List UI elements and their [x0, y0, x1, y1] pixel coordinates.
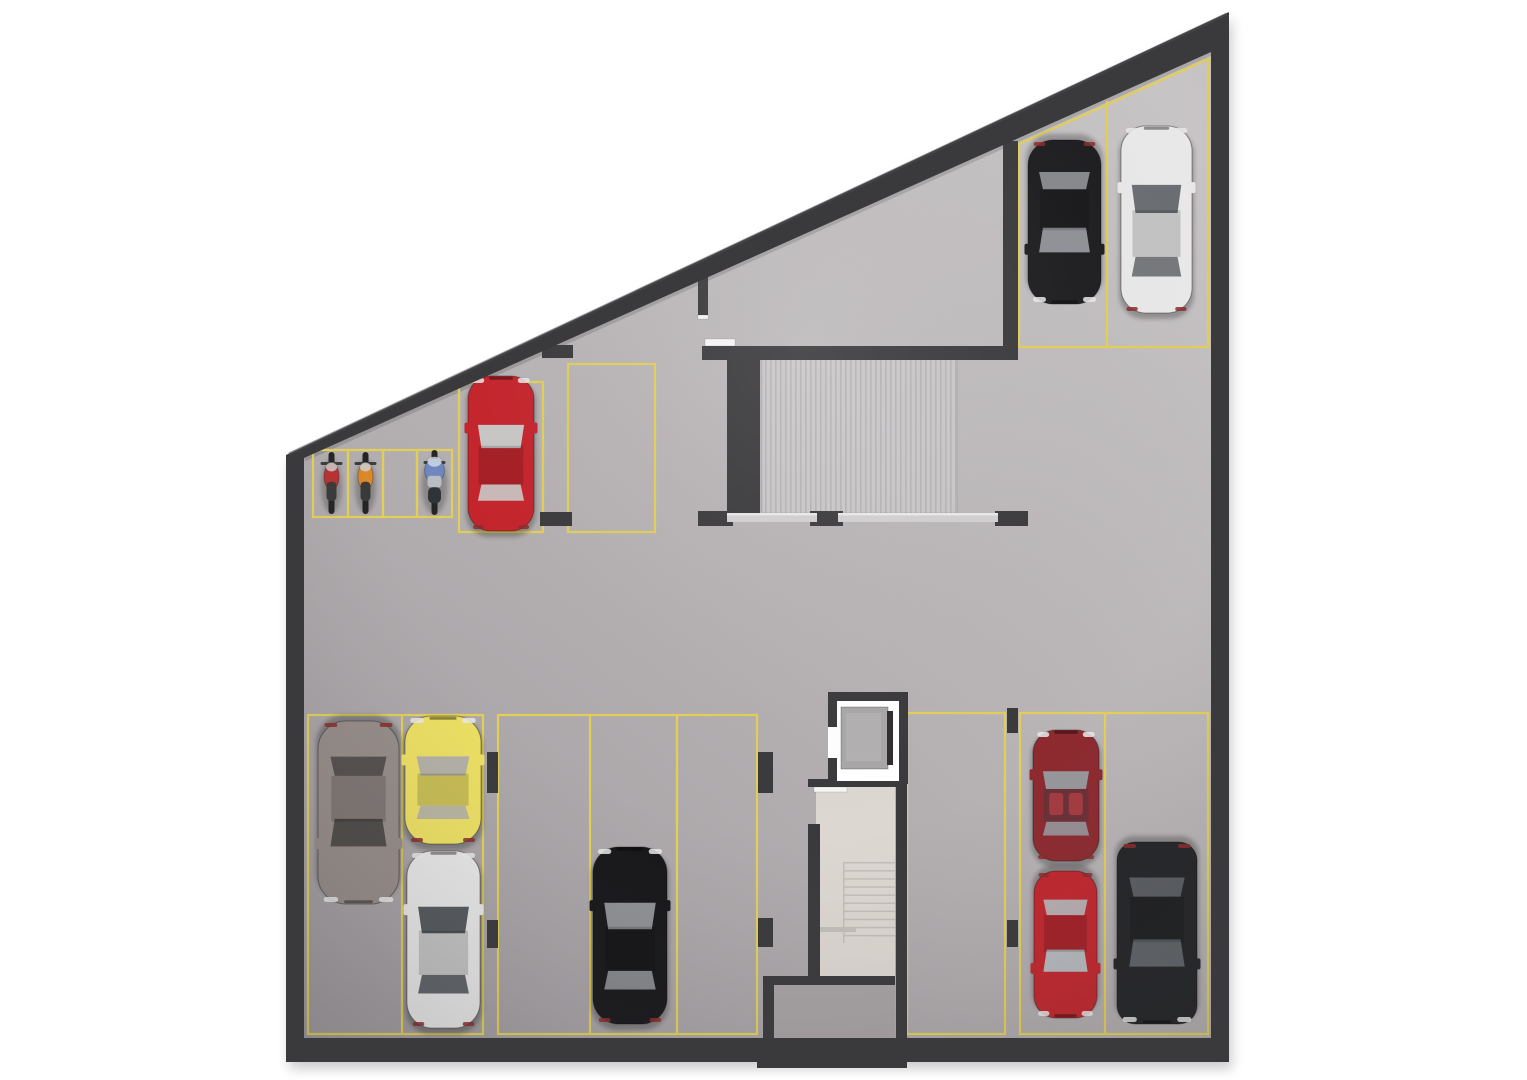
car-grille	[1054, 1014, 1077, 1017]
car-mirror-right	[315, 838, 321, 849]
pillar-c2	[1007, 920, 1018, 947]
stair-tread	[843, 870, 895, 872]
car-windshield	[1039, 228, 1090, 253]
car-mirror-right	[1031, 963, 1037, 974]
stair-tread	[843, 935, 895, 937]
car-mirror-left	[404, 904, 410, 915]
car-grille	[1144, 127, 1170, 130]
car-headlight-left	[1083, 297, 1096, 302]
car-mirror-left	[1030, 769, 1036, 780]
car-grille	[429, 717, 456, 720]
stair-east-wall	[896, 782, 907, 1038]
pillar-b2	[758, 918, 773, 947]
car-rear-window	[1039, 172, 1090, 189]
parking-garage-floor-plan	[0, 0, 1527, 1080]
car-taillight-right	[325, 723, 338, 727]
car-taillight-left	[1178, 844, 1191, 848]
car-taillight-right	[1034, 142, 1046, 146]
car-headlight-left	[1177, 1017, 1191, 1022]
red-hatchback	[465, 376, 538, 537]
car-mirror-left	[465, 423, 471, 434]
car-rear-window	[1129, 877, 1184, 896]
car-headlight-right	[1083, 732, 1095, 737]
car-roof	[1133, 210, 1181, 257]
ramp-door	[705, 339, 735, 346]
car-mirror-right	[478, 904, 484, 915]
elevator-car-floor	[846, 713, 881, 761]
car-windshield	[1043, 950, 1087, 972]
pillar-a1	[487, 752, 498, 793]
car-windshield	[1132, 185, 1182, 213]
moto-windscreen	[326, 463, 337, 472]
car-taillight-right	[463, 838, 475, 842]
car-grille	[344, 900, 373, 903]
car-windshield	[418, 907, 469, 934]
car-mirror-right	[1114, 958, 1120, 969]
black-sedan-lower	[590, 847, 671, 1030]
car-seat	[1049, 793, 1063, 815]
car-mirror-right	[1025, 244, 1031, 255]
car-rear-window	[417, 806, 470, 819]
vestibule-west-wall	[763, 976, 774, 1038]
stall-stub-south	[540, 512, 572, 526]
stair-west-wall	[808, 824, 820, 978]
car-roof	[1040, 189, 1089, 230]
car-headlight-right	[462, 853, 475, 858]
rail-post-east	[995, 511, 1028, 526]
car-taillight-left	[599, 1018, 611, 1022]
stair-tread	[843, 886, 895, 888]
car-headlight-left	[1126, 128, 1139, 133]
car-taillight-left	[411, 838, 423, 842]
car-taillight-right	[1123, 844, 1136, 848]
car-headlight-right	[1123, 1017, 1137, 1022]
car-mirror-left	[1095, 963, 1101, 974]
car-headlight-right	[1033, 297, 1046, 302]
car-mirror-right	[665, 900, 671, 911]
car-grille	[1143, 1020, 1172, 1023]
moto-seat	[327, 482, 337, 501]
car-mirror-right	[1190, 182, 1196, 193]
elevator-door-gap	[828, 727, 837, 758]
car-headlight-right	[518, 378, 530, 383]
vehicle-ramp	[762, 357, 957, 513]
black-sedan-upper	[1025, 134, 1105, 304]
car-windshield	[478, 425, 524, 448]
pillar-b1	[758, 752, 773, 793]
pillar-a2	[487, 920, 498, 948]
guard-rail-highlight	[838, 513, 998, 515]
car-taillight-left	[1082, 873, 1092, 877]
car-taillight-right	[650, 1018, 662, 1022]
car-rear-window	[478, 485, 524, 501]
diagonal-stub	[698, 277, 708, 315]
car-rear-window	[418, 975, 469, 994]
floor-plan-svg	[0, 0, 1527, 1080]
maroon-coupe	[1030, 730, 1103, 867]
stair-tread	[843, 862, 895, 864]
red-sedan-lower	[1031, 865, 1101, 1018]
car-taillight-right	[463, 1022, 475, 1026]
car-taillight-right	[1039, 873, 1049, 877]
car-mirror-right	[532, 423, 538, 434]
car-windshield	[1129, 939, 1184, 966]
moto-windscreen	[360, 463, 371, 472]
car-windshield	[604, 903, 655, 930]
car-grille	[617, 848, 644, 851]
white-sedan-lower	[404, 851, 484, 1034]
elevator-door-strip	[887, 711, 893, 765]
car-roof	[479, 446, 524, 485]
gray-luxury-sedan	[315, 715, 403, 904]
car-taillight-left	[1038, 855, 1049, 859]
car-roof	[1044, 915, 1087, 952]
car-windshield	[1043, 771, 1089, 791]
car-taillight-left	[1127, 307, 1138, 311]
car-taillight-left	[473, 525, 484, 529]
car-seat	[1069, 793, 1083, 815]
car-rear-window	[1043, 822, 1089, 836]
car-taillight-left	[380, 723, 393, 727]
stairwell-floor	[816, 787, 895, 978]
white-sedan-upper	[1118, 126, 1196, 319]
car-taillight-left	[1084, 142, 1096, 146]
stair-tread	[843, 878, 895, 880]
car-mirror-left	[590, 900, 596, 911]
stair-vestibule-floor	[774, 985, 895, 1038]
car-headlight-right	[324, 897, 338, 902]
car-mirror-left	[1195, 958, 1201, 969]
car-mirror-left	[397, 838, 403, 849]
elevator-shaft-south	[837, 771, 899, 781]
stair-tread	[843, 894, 895, 896]
stub-door-cap	[698, 315, 708, 319]
car-headlight-left	[412, 853, 425, 858]
car-rear-window	[330, 757, 386, 776]
car-windshield	[417, 756, 470, 775]
car-mirror-left	[1099, 244, 1105, 255]
car-mirror-left	[1118, 182, 1124, 193]
car-mirror-right	[479, 754, 485, 765]
yellow-compact	[402, 716, 485, 850]
car-headlight-right	[1175, 128, 1188, 133]
stair-ledge	[818, 927, 856, 932]
vestibule-north-wall	[763, 976, 895, 985]
car-rear-window	[604, 971, 655, 990]
stair-door	[814, 787, 847, 792]
car-headlight-right	[1038, 1011, 1049, 1016]
car-mirror-right	[1097, 769, 1103, 780]
car-headlight-right	[649, 849, 662, 854]
car-headlight-left	[1082, 1011, 1093, 1016]
guard-rail-highlight	[727, 513, 817, 515]
car-headlight-left	[410, 718, 424, 723]
black-suv	[1114, 836, 1201, 1024]
car-taillight-right	[1175, 307, 1186, 311]
car-headlight-left	[1037, 732, 1049, 737]
car-roof	[419, 931, 468, 975]
ramp-west-wall	[727, 355, 760, 515]
car-roof	[331, 776, 385, 822]
car-grille	[489, 377, 513, 380]
car-grille	[1054, 731, 1078, 734]
car-grille	[430, 852, 456, 855]
car-rear-window	[1132, 257, 1182, 277]
scooter-deck	[428, 476, 442, 487]
ramp-east-wall	[1003, 141, 1018, 360]
car-roof	[605, 927, 655, 971]
moto-seat	[361, 482, 371, 501]
car-grille	[1051, 300, 1077, 303]
car-roof	[1130, 897, 1184, 943]
car-headlight-left	[598, 849, 611, 854]
scooter-seat	[428, 487, 441, 503]
stair-tread	[843, 903, 895, 905]
car-roof	[417, 774, 468, 806]
pillar-c1	[1007, 708, 1018, 733]
car-windshield	[330, 819, 386, 846]
car-taillight-right	[519, 525, 530, 529]
car-headlight-right	[462, 718, 476, 723]
car-taillight-right	[1084, 855, 1095, 859]
car-rear-window	[1043, 900, 1087, 915]
scooter-windscreen	[428, 457, 442, 467]
car-mirror-left	[402, 754, 408, 765]
stair-tread	[843, 911, 895, 913]
car-headlight-left	[379, 897, 393, 902]
stair-tread	[843, 919, 895, 921]
car-taillight-left	[413, 1022, 425, 1026]
